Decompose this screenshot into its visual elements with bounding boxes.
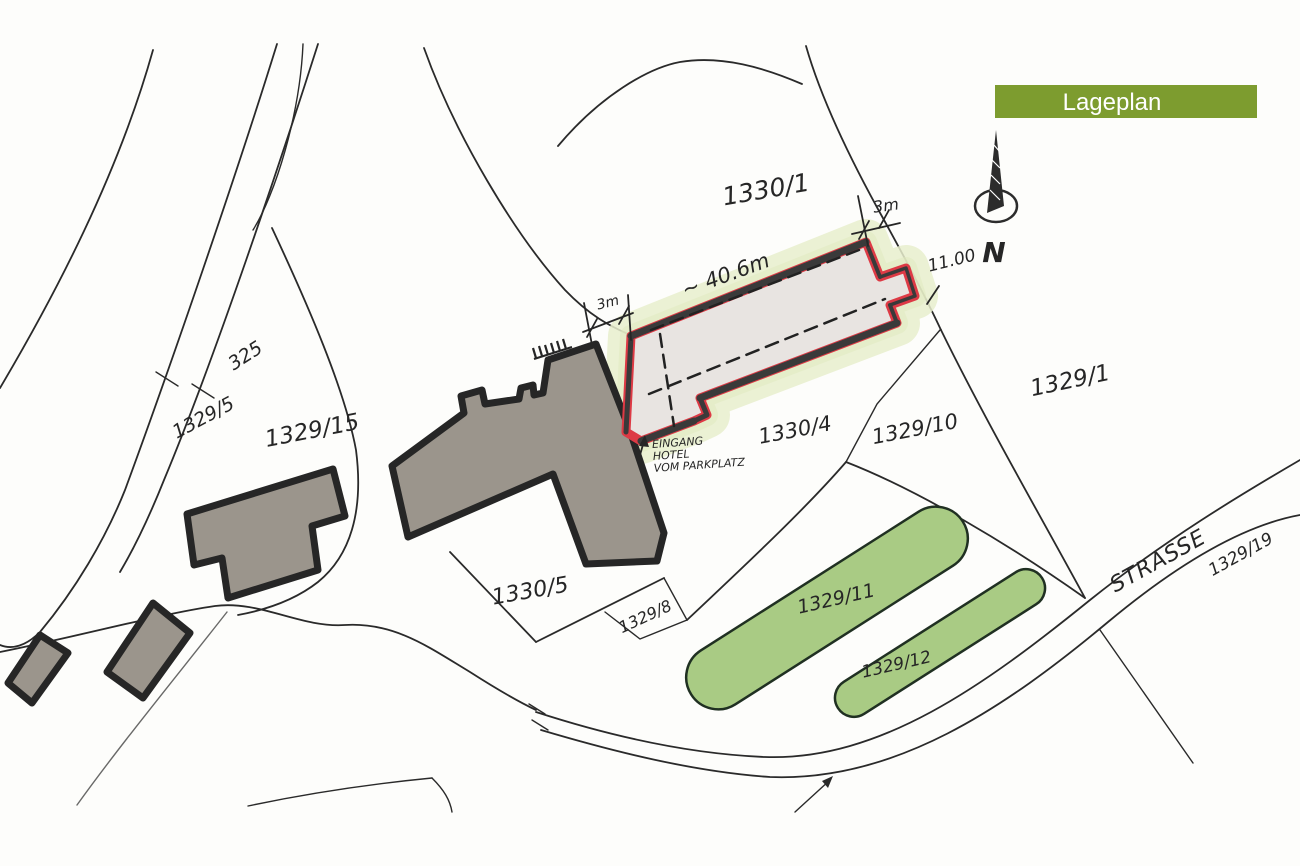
dimension-11-00: 11.00	[926, 245, 978, 304]
boundary-1330-1-west	[424, 48, 628, 334]
boundary-branch-bottom-right	[1100, 630, 1193, 763]
parcel-label-1329-10: 1329/10	[870, 409, 960, 449]
parcel-label-325: 325	[224, 337, 266, 375]
dimension-top-3m-label: 3m	[872, 194, 900, 216]
parcel-label-1330-4: 1330/4	[756, 411, 833, 449]
parcel-label-1330-5: 1330/5	[490, 572, 571, 610]
existing-building-barn	[107, 603, 190, 698]
title-badge: Lageplan	[995, 85, 1257, 118]
existing-building-shed	[8, 635, 68, 703]
parcel-label-1330-1: 1330/1	[720, 168, 812, 212]
boundary-bottom-left	[248, 778, 432, 806]
title-label: Lageplan	[1063, 89, 1162, 116]
green-areas	[674, 495, 1052, 725]
boundary-dome-curve	[558, 60, 802, 146]
road-line-left-curve	[0, 50, 153, 388]
dimension-11-00-label: 11.00	[926, 245, 978, 276]
entrance-annotation: EINGANG HOTEL VOM PARKPLATZ	[652, 432, 746, 475]
parcel-label-1329-19: 1329/19	[1205, 529, 1276, 581]
site-plan-canvas: 3m 11.00 3m ~ 40.6m EINGANG HOTEL VOM PA…	[0, 0, 1300, 866]
parcel-label-1329-15: 1329/15	[263, 409, 362, 453]
north-label: N	[982, 236, 1005, 269]
street-label: STRASSE	[1106, 525, 1211, 598]
driveway-south-edge	[0, 605, 536, 710]
north-arrow-icon: N	[975, 130, 1017, 269]
parcel-label-1329-1: 1329/1	[1028, 360, 1113, 402]
dimension-left-3m-label: 3m	[595, 293, 621, 314]
site-plan-page: 3m 11.00 3m ~ 40.6m EINGANG HOTEL VOM PA…	[0, 0, 1300, 866]
boundary-wedge-line	[253, 44, 303, 230]
parcel-label-1329-8: 1329/8	[616, 596, 675, 637]
existing-buildings	[8, 339, 664, 703]
arrow-annotation-bottom	[795, 776, 833, 812]
parcel-label-1329-5: 1329/5	[169, 392, 238, 443]
boundary-branch-bottom	[432, 778, 452, 812]
